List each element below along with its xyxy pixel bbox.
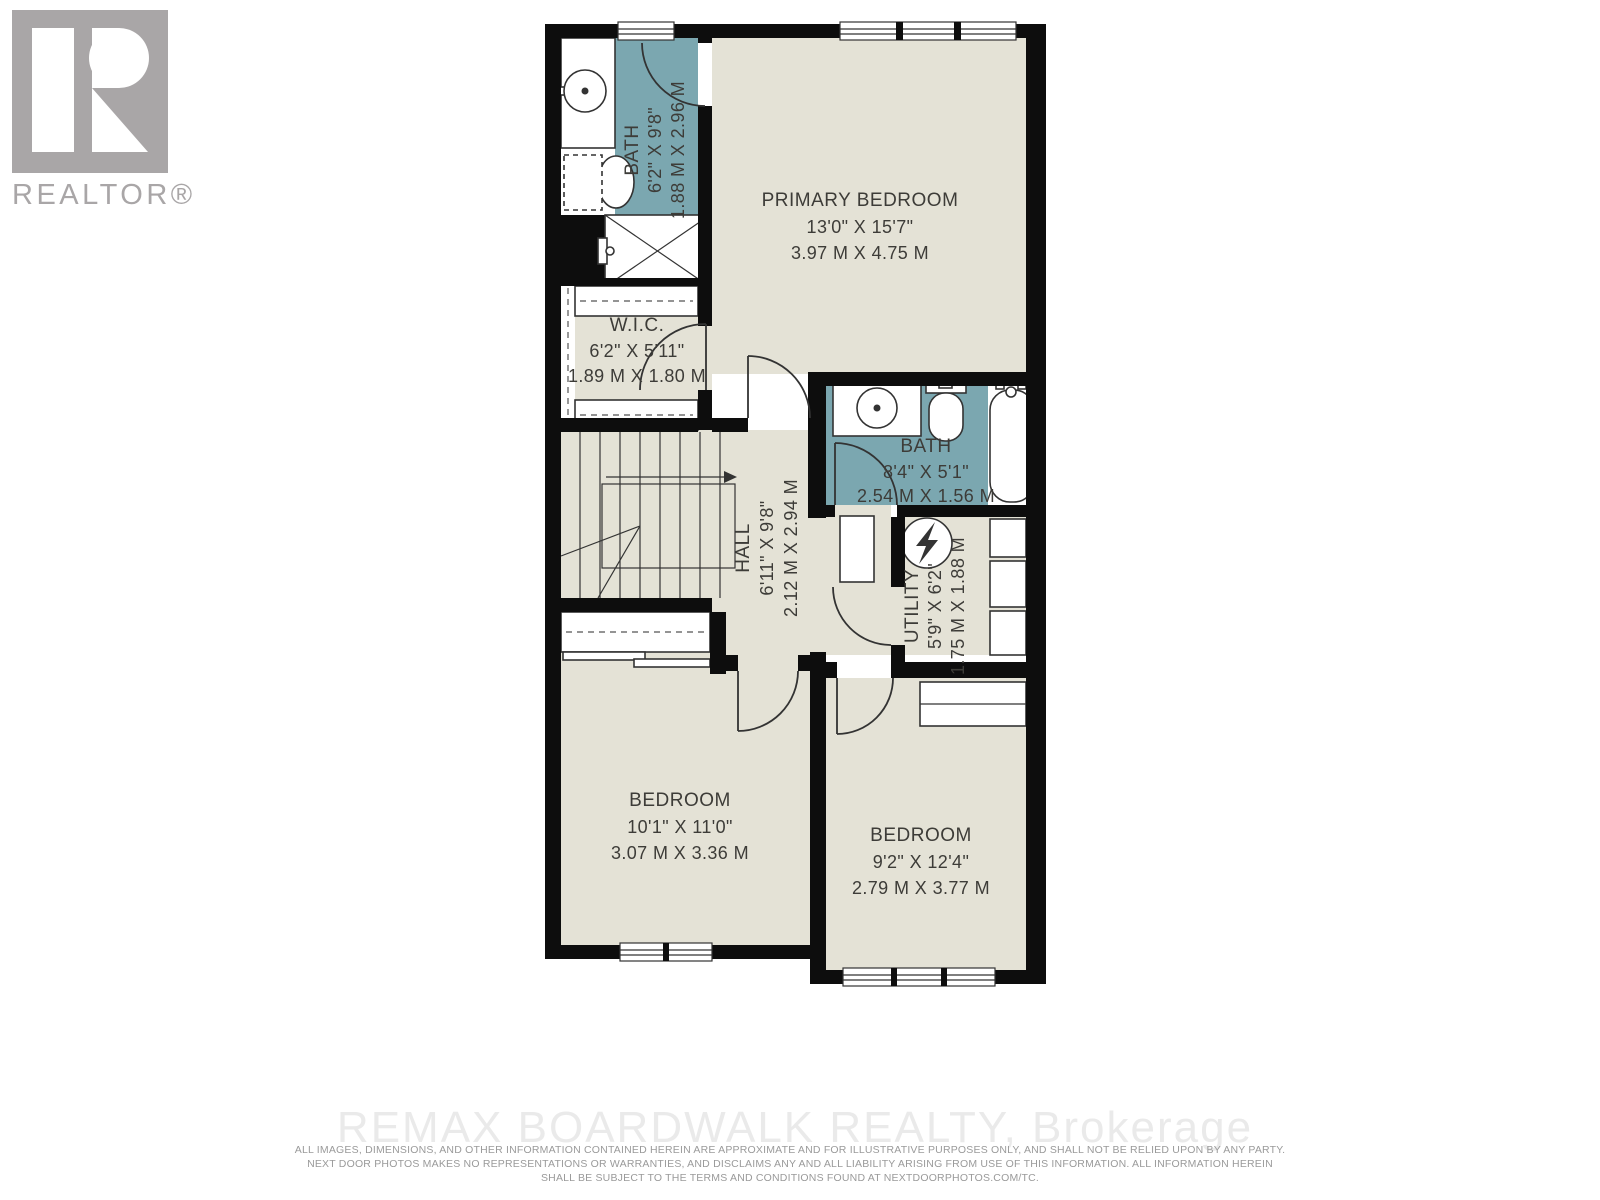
realtor-logo-icon [12, 10, 168, 173]
svg-text:6'2" X 9'8": 6'2" X 9'8" [645, 107, 665, 193]
svg-text:13'0" X 15'7": 13'0" X 15'7" [807, 217, 914, 237]
bedroom-left-closet [561, 612, 710, 667]
svg-text:SHALL BE SUBJECT TO THE TERMS: SHALL BE SUBJECT TO THE TERMS AND CONDIT… [541, 1172, 1039, 1184]
window-bedroom-left [620, 943, 712, 961]
svg-text:1.89 M X 1.80 M: 1.89 M X 1.80 M [568, 366, 706, 386]
utility-shelf [990, 519, 1026, 557]
svg-text:1.88 M X 2.96 M: 1.88 M X 2.96 M [668, 81, 688, 219]
svg-text:6'11" X 9'8": 6'11" X 9'8" [757, 500, 777, 595]
svg-text:3.97 M X 4.75 M: 3.97 M X 4.75 M [791, 243, 929, 263]
svg-text:6'2" X 5'11": 6'2" X 5'11" [589, 341, 684, 361]
realtor-logo-text: REALTOR® [12, 179, 196, 211]
window-bedroom-right [843, 968, 995, 986]
svg-text:W.I.C.: W.I.C. [610, 315, 665, 336]
sliding-door [563, 652, 645, 660]
toilet-bowl-icon [929, 393, 963, 441]
svg-text:NEXT DOOR PHOTOS MAKES NO REPR: NEXT DOOR PHOTOS MAKES NO REPRESENTATION… [307, 1158, 1273, 1170]
svg-text:5'9" X 6'2": 5'9" X 6'2" [925, 563, 945, 649]
utility-shelf [990, 561, 1026, 607]
svg-text:PRIMARY BEDROOM: PRIMARY BEDROOM [762, 190, 959, 211]
svg-text:HALL: HALL [733, 523, 754, 573]
window-primary-triple [840, 22, 1016, 40]
svg-text:2.54 M X 1.56 M: 2.54 M X 1.56 M [857, 486, 995, 506]
door-leaf [840, 516, 874, 582]
tub-faucet-icon [1006, 387, 1016, 397]
toilet-tank-icon [564, 155, 602, 210]
svg-text:BATH: BATH [622, 124, 643, 175]
label-bedroom-left: BEDROOM 10'1" X 11'0" 3.07 M X 3.36 M [611, 790, 749, 863]
disclaimer-text: ALL IMAGES, DIMENSIONS, AND OTHER INFORM… [295, 1144, 1285, 1184]
shower-knob-icon [606, 247, 614, 255]
svg-text:BEDROOM: BEDROOM [870, 825, 972, 846]
svg-text:2.12 M X 2.94 M: 2.12 M X 2.94 M [781, 479, 801, 617]
window-bath-upper [618, 22, 674, 40]
svg-text:9'2" X 12'4": 9'2" X 12'4" [873, 852, 970, 872]
svg-text:ALL IMAGES, DIMENSIONS, AND OT: ALL IMAGES, DIMENSIONS, AND OTHER INFORM… [295, 1144, 1285, 1156]
svg-text:3.07 M X 3.36 M: 3.07 M X 3.36 M [611, 843, 749, 863]
floor-plan-page: REALTOR® [0, 0, 1600, 1200]
svg-text:8'4" X 5'1": 8'4" X 5'1" [883, 462, 969, 482]
svg-text:BEDROOM: BEDROOM [629, 790, 731, 811]
svg-text:2.79 M X 3.77 M: 2.79 M X 3.77 M [852, 878, 990, 898]
svg-text:1.75 M X 1.88 M: 1.75 M X 1.88 M [948, 537, 968, 675]
svg-text:BATH: BATH [900, 436, 951, 457]
bedroom-right-closet [920, 682, 1026, 726]
utility-shelf [990, 611, 1026, 655]
sliding-door [634, 659, 710, 667]
svg-text:UTILITY: UTILITY [902, 569, 923, 643]
svg-text:10'1" X 11'0": 10'1" X 11'0" [627, 817, 733, 837]
